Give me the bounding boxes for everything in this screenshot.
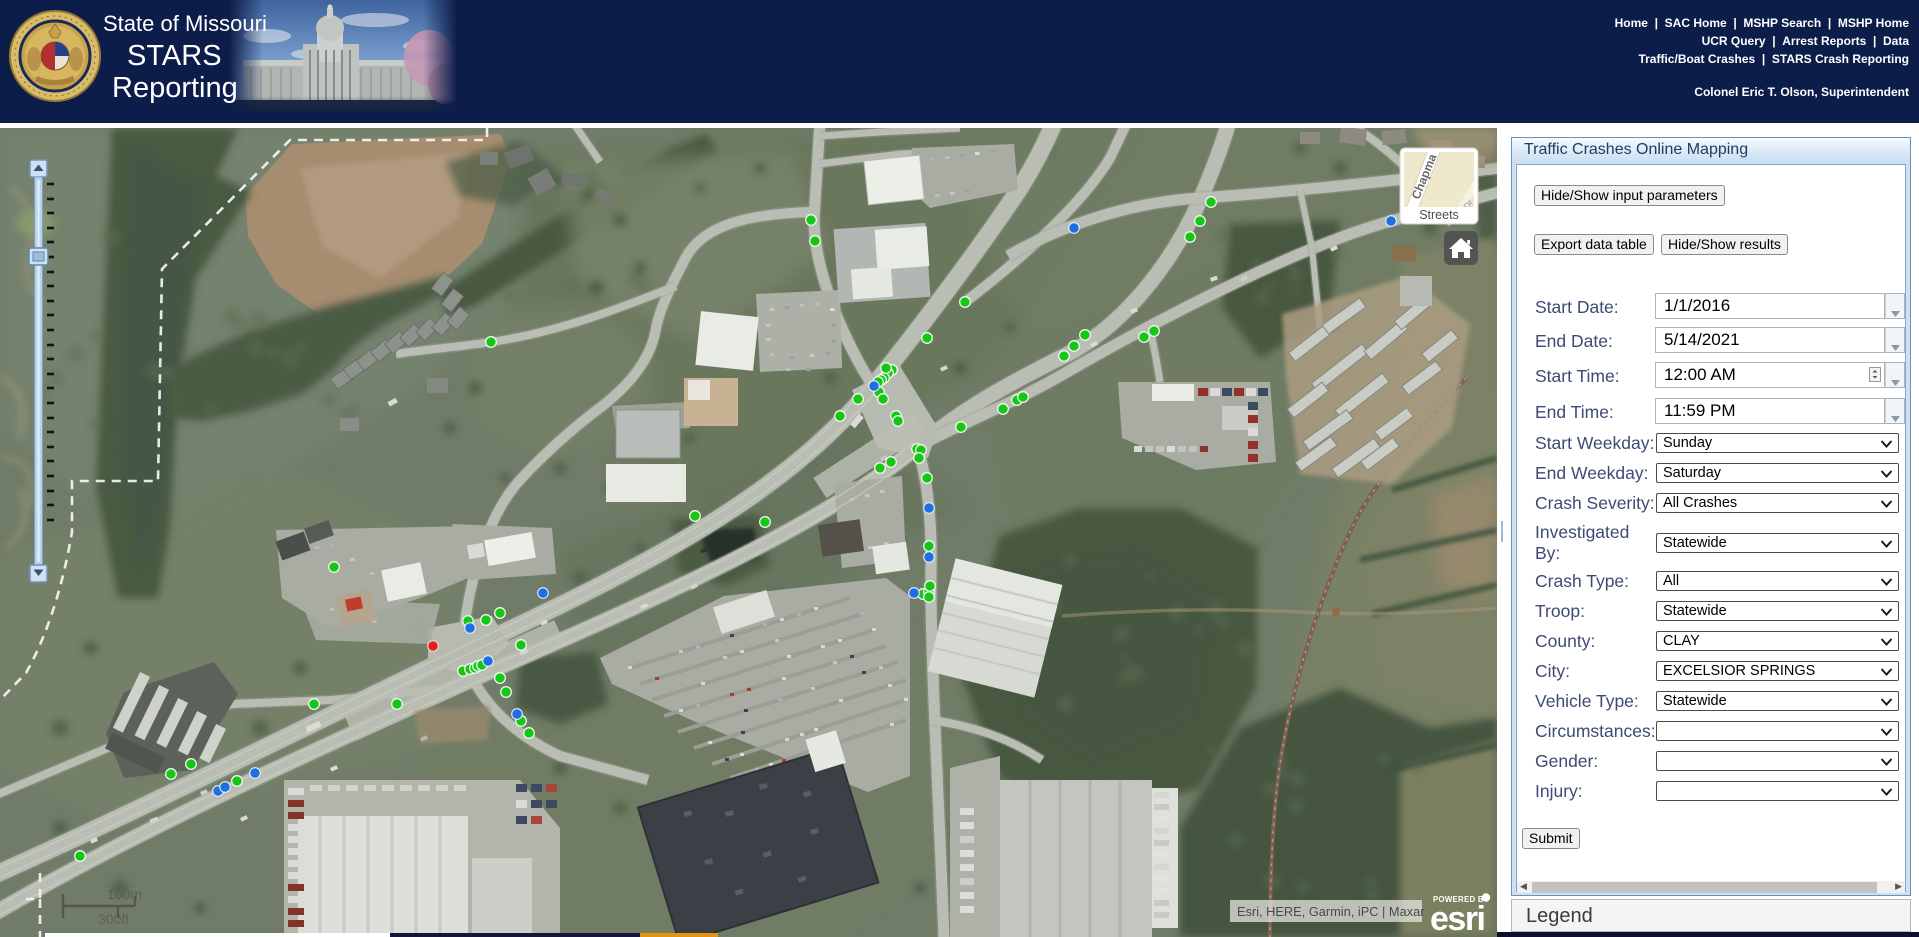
svg-text:Esri, HERE, Garmin, iPC | Maxa: Esri, HERE, Garmin, iPC | Maxar [1237,904,1425,919]
svg-text:100m: 100m [107,886,142,902]
svg-text:esri: esri [1430,900,1485,937]
svg-text:300ft: 300ft [98,911,129,927]
svg-text:Streets: Streets [1419,208,1459,222]
